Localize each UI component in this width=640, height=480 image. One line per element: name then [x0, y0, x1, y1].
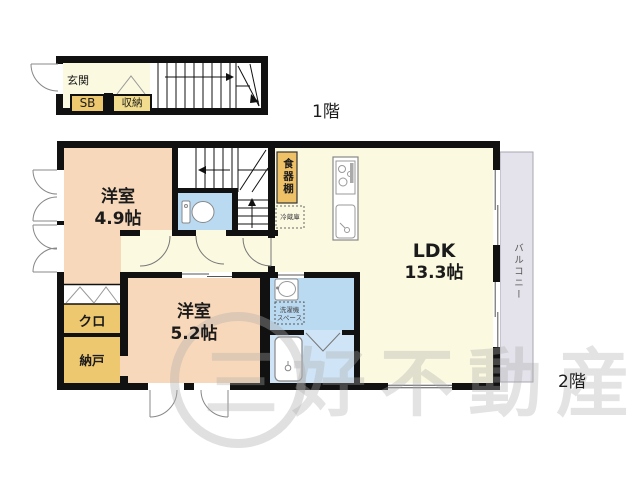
- floor1-label: 1階: [312, 97, 340, 122]
- ldk-name: LDK: [382, 240, 486, 262]
- toilet-icon: [182, 201, 214, 223]
- sink-icon: [336, 205, 355, 238]
- casement-windows: [33, 170, 64, 272]
- washer-space-label: 洗濯機 スペース: [275, 306, 304, 322]
- room-52-name: 洋室: [146, 301, 242, 323]
- cupboard-label: 食器棚: [281, 158, 296, 196]
- room-49-name: 洋室: [70, 186, 166, 208]
- washer-space-line1: 洗濯機: [275, 306, 304, 314]
- room-52-size: 5.2帖: [146, 323, 242, 345]
- ldk-label: LDK 13.3帖: [382, 240, 486, 284]
- floor2-label: 2階: [558, 367, 586, 392]
- wash-basin-icon: [275, 279, 298, 300]
- floorplan-image: 三好不動産 1階 玄関 SB 収納 洋室 4.9帖 洋室 5.2帖 LDK 13…: [0, 0, 640, 480]
- kitchen-counter: [333, 157, 358, 240]
- wall-divider-1f: [104, 93, 113, 114]
- ldk-size: 13.3帖: [382, 262, 486, 284]
- washer-space-line2: スペース: [275, 314, 304, 322]
- genkan-label: 玄関: [67, 72, 89, 88]
- entrance-door: [31, 64, 63, 94]
- balcony-label: バルコニー: [510, 243, 524, 301]
- room-52-label: 洋室 5.2帖: [146, 301, 242, 345]
- nando-label: 納戸: [64, 350, 120, 369]
- room-49-label: 洋室 4.9帖: [70, 186, 166, 230]
- storage-label: 収納: [113, 95, 151, 112]
- shoe-box-label: SB: [71, 95, 104, 112]
- closet-label: クロ: [64, 310, 120, 330]
- refrigerator-label: 冷蔵庫: [276, 213, 304, 221]
- room-49-size: 4.9帖: [70, 208, 166, 230]
